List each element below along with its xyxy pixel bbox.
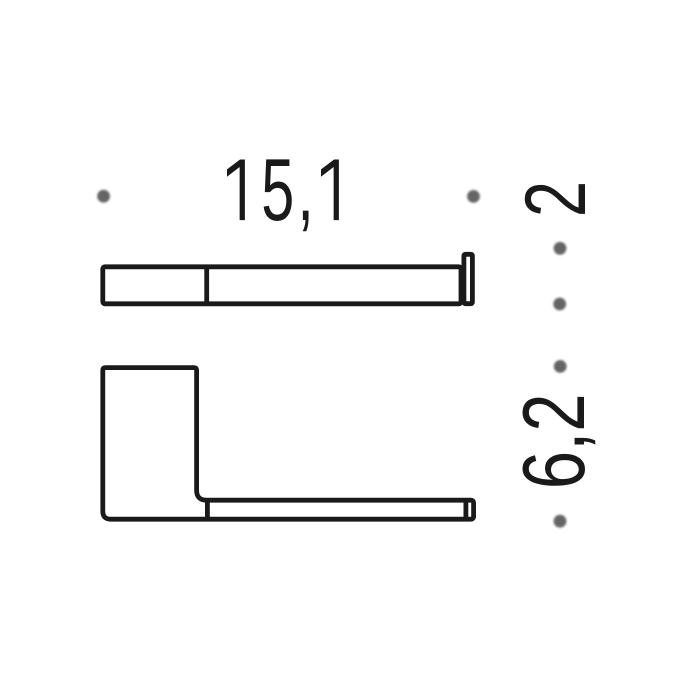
svg-text:5: 5 [261,140,294,238]
svg-text:,: , [297,140,314,238]
svg-text:2: 2 [508,181,604,217]
svg-text:6,2: 6,2 [504,393,603,489]
